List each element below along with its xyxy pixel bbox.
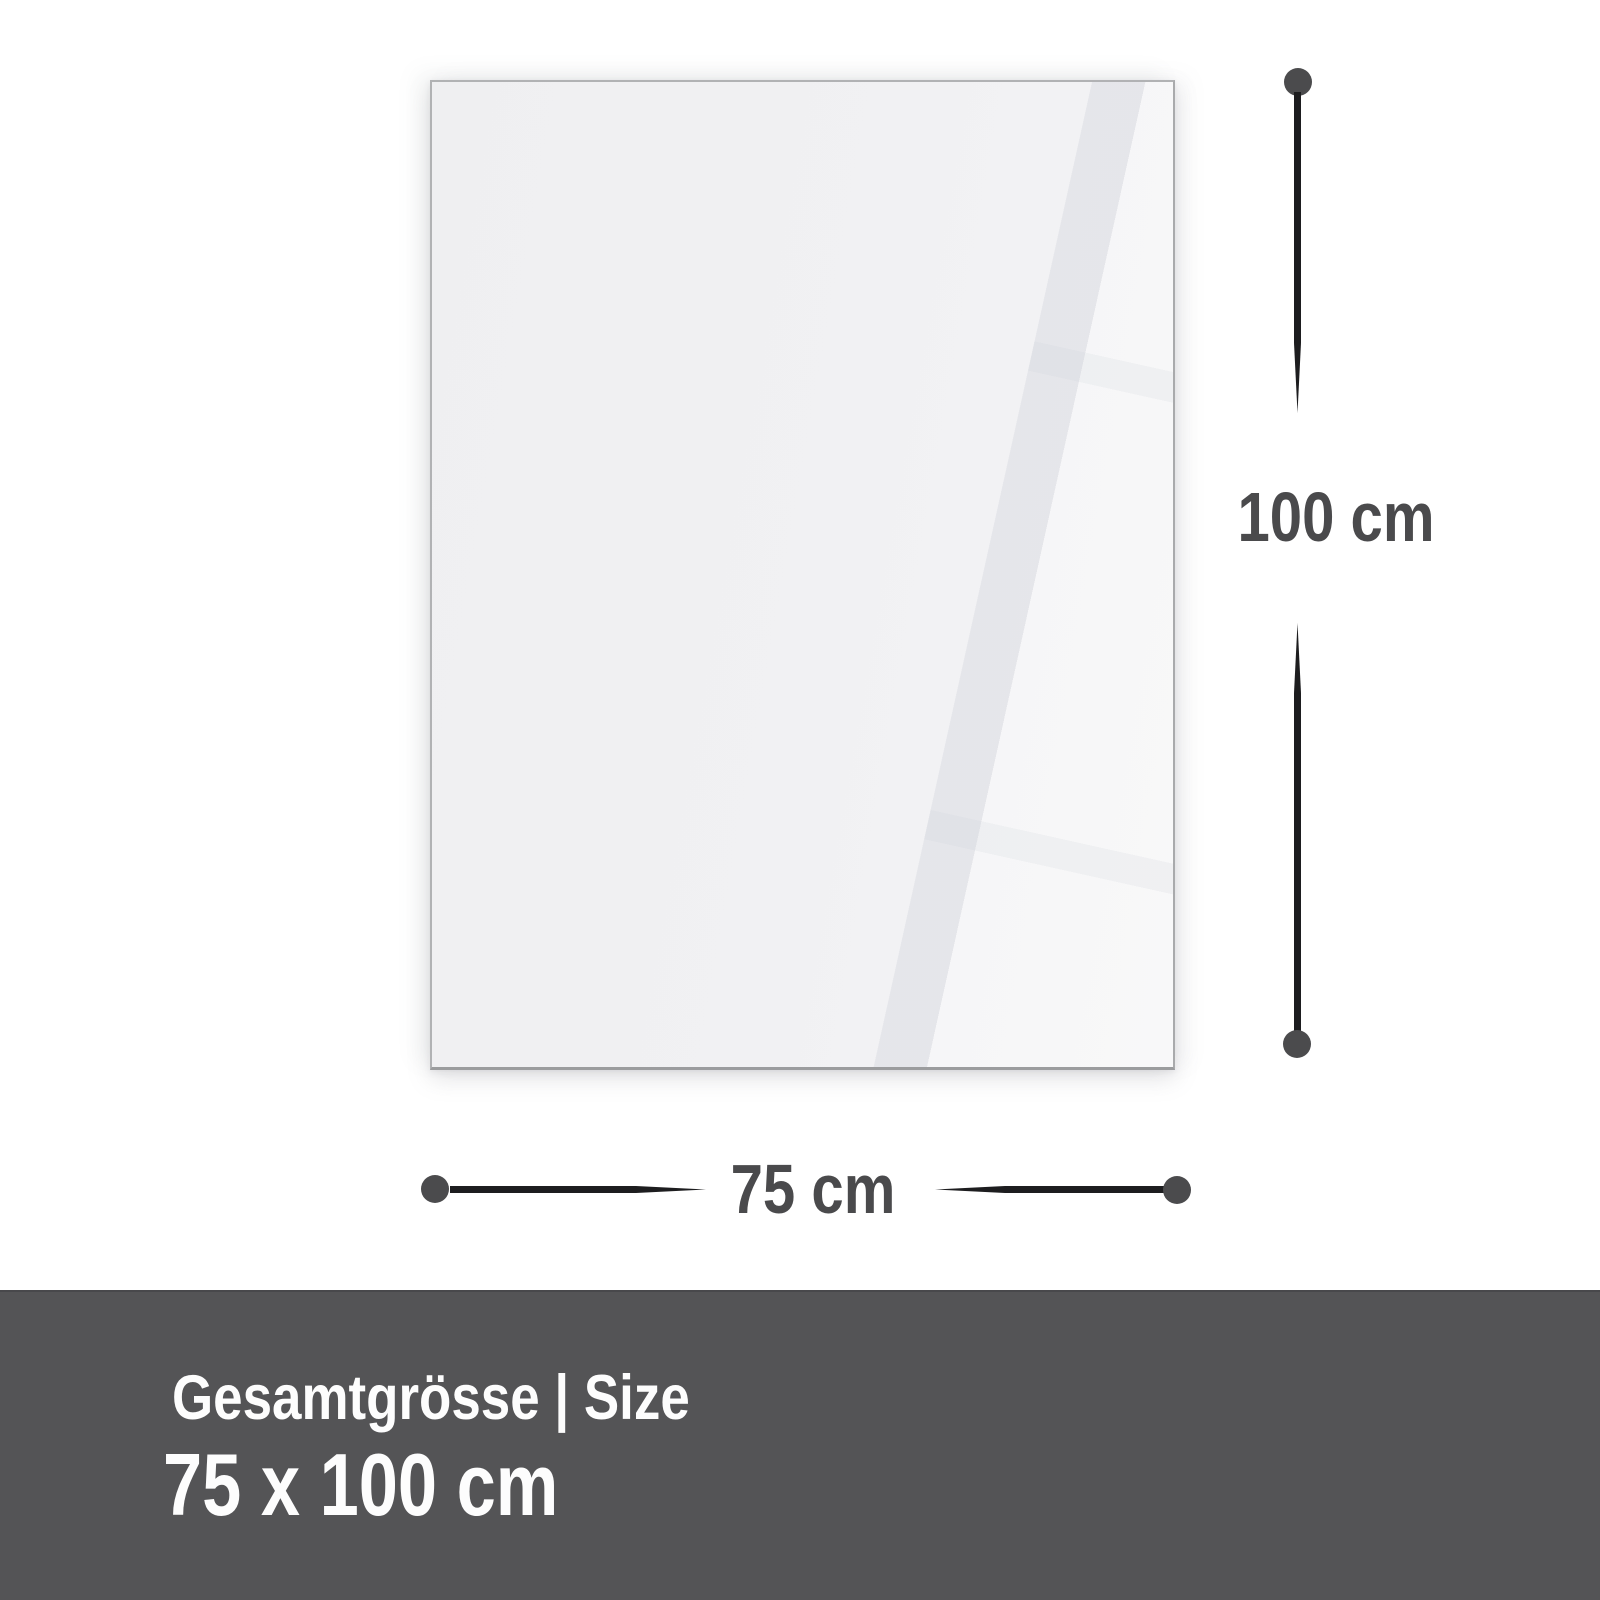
- product-panel: [430, 80, 1175, 1070]
- dimension-endpoint-dot-bottom: [1283, 1030, 1311, 1058]
- footer-size-value: 75 x 100 cm: [163, 1441, 558, 1529]
- dimension-endpoint-dot-right: [1163, 1176, 1191, 1204]
- height-dimension-line-lower: [1294, 623, 1301, 1041]
- window-reflection-overlay: [786, 80, 1175, 1070]
- footer-title: Gesamtgrösse | Size: [172, 1367, 690, 1430]
- dimension-endpoint-dot-left: [421, 1175, 449, 1203]
- product-size-illustration: 100 cm 75 cm Gesamtgrösse | Size 75 x 10…: [0, 0, 1600, 1600]
- size-footer: Gesamtgrösse | Size 75 x 100 cm: [0, 1290, 1600, 1600]
- height-dimension-label: 100 cm: [1129, 482, 1544, 552]
- dimension-endpoint-dot-top: [1284, 68, 1312, 96]
- height-dimension-line-upper: [1294, 92, 1301, 413]
